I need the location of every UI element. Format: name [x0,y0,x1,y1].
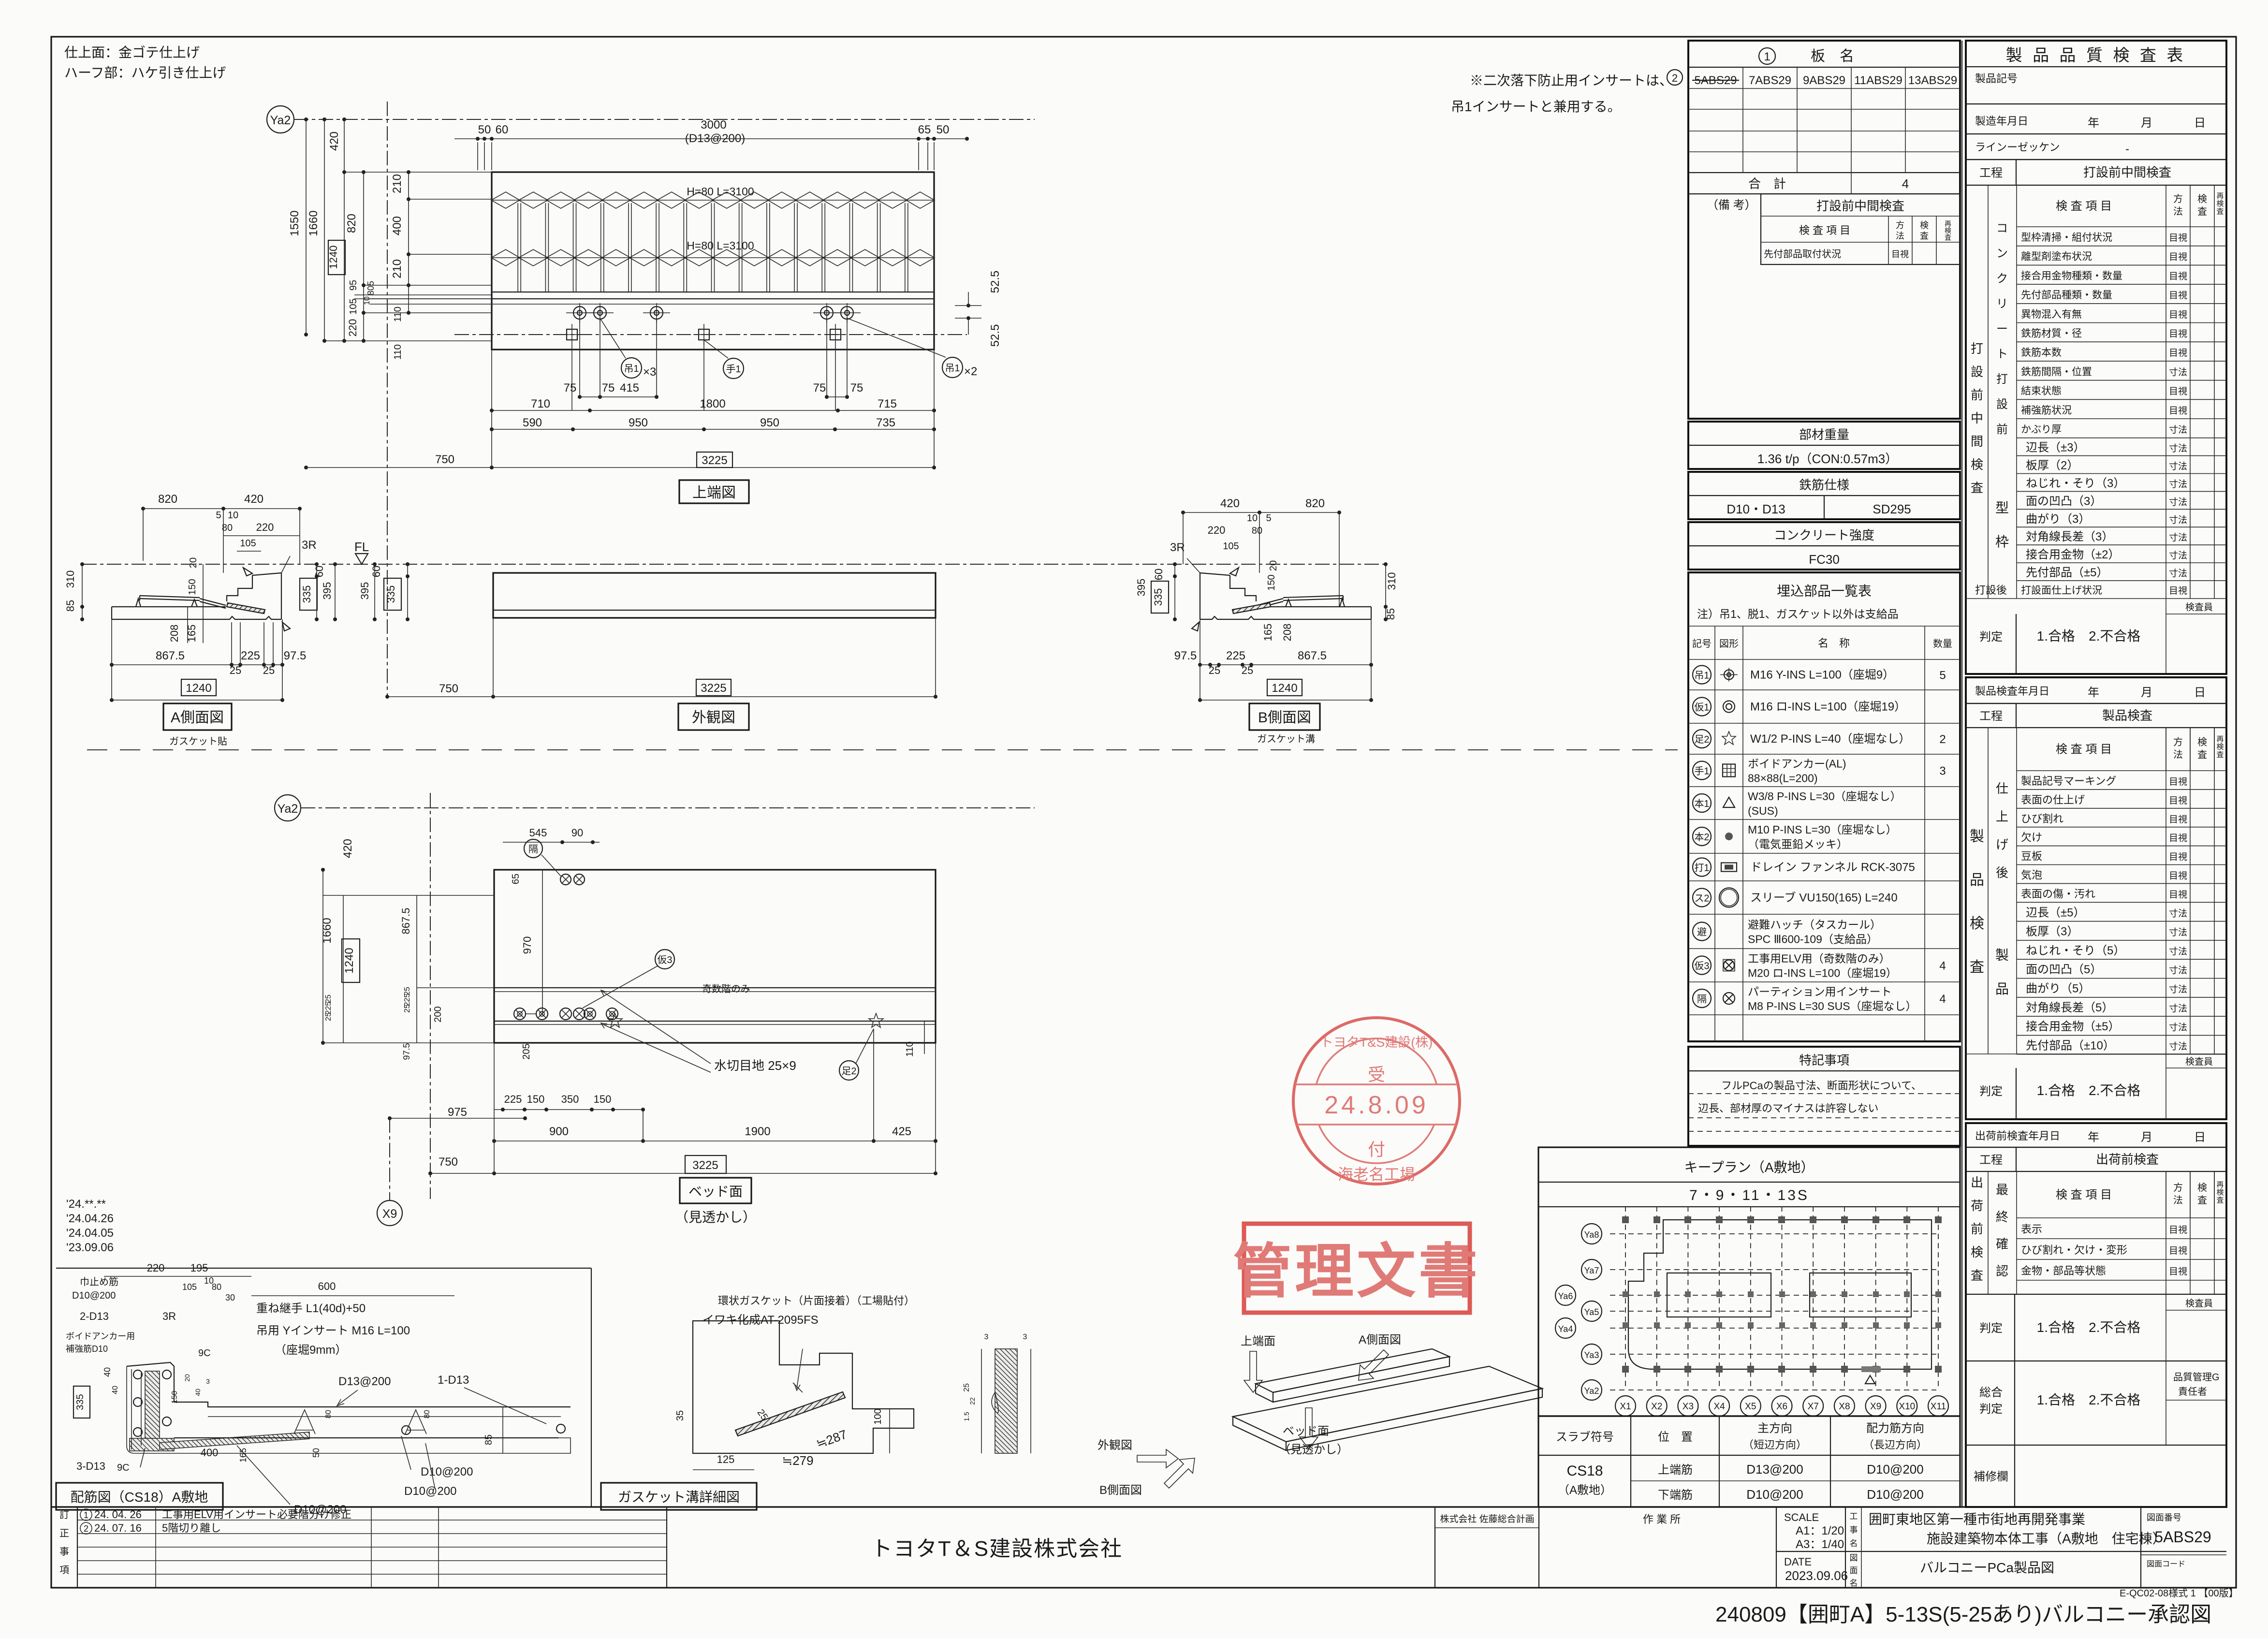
svg-text:805: 805 [366,281,376,295]
svg-text:M10 P-INS L=30（座堀なし）: M10 P-INS L=30（座堀なし） [1748,823,1897,836]
svg-text:150: 150 [171,1391,179,1404]
svg-text:先付部品種類・数量: 先付部品種類・数量 [2021,290,2112,301]
svg-text:製: 製 [1970,829,1984,845]
svg-text:H=80 L=3100: H=80 L=3100 [687,185,754,198]
svg-text:208: 208 [1281,624,1293,642]
svg-text:（座堀9mm）: （座堀9mm） [275,1344,347,1357]
svg-text:950: 950 [629,416,648,429]
svg-text:Ya4: Ya4 [1558,1324,1573,1334]
svg-text:（見透かし）: （見透かし） [1279,1443,1348,1456]
svg-text:Ya3: Ya3 [1584,1350,1599,1360]
svg-text:検: 検 [1971,457,1983,472]
svg-text:寸法: 寸法 [2169,497,2187,507]
svg-text:トヨタT&S建設(株): トヨタT&S建設(株) [1320,1035,1433,1050]
svg-text:総合: 総合 [1979,1386,2003,1399]
svg-text:25: 25 [403,1004,411,1013]
svg-text:品質管理G: 品質管理G [2173,1372,2220,1383]
svg-text:辺長（±5）: 辺長（±5） [2026,906,2085,919]
svg-text:165: 165 [238,1448,248,1462]
svg-text:ねじれ・そり（5）: ねじれ・そり（5） [2026,944,2125,957]
svg-text:日: 日 [2194,117,2206,130]
svg-text:検: 検 [2197,1182,2207,1193]
svg-text:Ya6: Ya6 [1558,1291,1573,1301]
svg-text:9C: 9C [117,1462,130,1473]
svg-text:D10・D13: D10・D13 [1727,502,1785,516]
svg-text:2: 2 [1672,72,1678,84]
svg-text:900: 900 [549,1125,569,1138]
svg-text:（長辺方向）: （長辺方向） [1863,1439,1927,1451]
svg-text:方: 方 [2173,193,2183,205]
svg-text:ひび割れ・欠け・変形: ひび割れ・欠け・変形 [2021,1244,2127,1256]
svg-text:目視: 目視 [2169,814,2187,825]
svg-text:前: 前 [1971,1222,1983,1236]
svg-text:ドレイン ファンネル RCK-3075: ドレイン ファンネル RCK-3075 [1750,861,1915,874]
svg-text:Ya8: Ya8 [1584,1230,1599,1240]
svg-text:'23.09.06: '23.09.06 [66,1241,114,1254]
svg-text:再: 再 [2216,1181,2224,1189]
svg-text:目視: 目視 [2169,776,2187,787]
svg-text:上: 上 [1996,809,2008,824]
svg-text:310: 310 [64,570,76,588]
svg-text:項: 項 [59,1565,69,1576]
svg-text:品: 品 [1995,981,2009,996]
svg-text:5: 5 [216,510,221,521]
svg-text:埋込部品一覧表: 埋込部品一覧表 [1777,584,1872,599]
svg-text:面の凹凸（5）: 面の凹凸（5） [2026,963,2102,976]
svg-text:225: 225 [504,1093,522,1105]
svg-text:工程: 工程 [1979,167,2003,180]
svg-text:判定: 判定 [1979,1085,2003,1098]
svg-text:目視: 目視 [2169,386,2187,397]
svg-text:上端図: 上端図 [692,485,736,501]
svg-text:注）吊1、脱1、ガスケット以外は支給品: 注）吊1、脱1、ガスケット以外は支給品 [1697,608,1899,620]
svg-text:名: 名 [1850,1539,1858,1548]
svg-text:867.5: 867.5 [400,907,412,934]
svg-text:X3: X3 [1683,1402,1694,1412]
svg-text:判定: 判定 [1979,630,2003,643]
svg-text:面: 面 [1850,1566,1858,1575]
svg-text:吊用 Yインサート M16 L=100: 吊用 Yインサート M16 L=100 [256,1324,410,1337]
svg-text:350: 350 [561,1093,579,1105]
svg-text:寸法: 寸法 [2169,479,2187,490]
svg-text:60: 60 [496,123,509,136]
svg-text:検: 検 [2216,743,2224,751]
svg-text:335: 335 [75,1394,86,1410]
svg-text:H=80 L=3100: H=80 L=3100 [687,239,754,252]
svg-text:型枠清掃・組付状況: 型枠清掃・組付状況 [2021,232,2112,243]
svg-text:検査員: 検査員 [2185,1056,2213,1067]
svg-text:目視: 目視 [2169,233,2187,243]
svg-text:目視: 目視 [2169,309,2187,320]
svg-text:50: 50 [936,123,950,136]
svg-text:24.8.09: 24.8.09 [1324,1091,1429,1119]
svg-text:査: 査 [2216,1196,2224,1204]
svg-text:25: 25 [263,664,275,676]
svg-text:220: 220 [347,319,359,337]
svg-text:位 置: 位 置 [1658,1431,1693,1444]
svg-text:仕上面：金ゴテ仕上げ: 仕上面：金ゴテ仕上げ [64,45,200,60]
svg-text:10: 10 [1247,513,1258,524]
svg-text:正: 正 [59,1528,69,1539]
svg-text:目視: 目視 [2169,1266,2187,1277]
svg-text:査: 査 [1971,1268,1983,1283]
svg-text:X7: X7 [1808,1402,1819,1412]
svg-text:スリーブ VU150(165) L=240: スリーブ VU150(165) L=240 [1750,892,1898,905]
svg-text:目視: 目視 [2169,1225,2187,1235]
svg-text:22: 22 [968,1397,976,1405]
svg-text:寸法: 寸法 [2169,965,2187,976]
svg-text:1: 1 [1764,50,1770,63]
svg-text:吊1: 吊1 [624,364,639,374]
svg-text:40: 40 [102,1367,112,1377]
svg-text:吊1: 吊1 [1694,671,1709,681]
svg-text:A側面図: A側面図 [171,710,224,726]
svg-text:検: 検 [2216,200,2224,208]
svg-text:M20 ロ-INS L=100（座堀19）: M20 ロ-INS L=100（座堀19） [1748,967,1897,980]
svg-text:1.5: 1.5 [963,1412,970,1421]
svg-text:40: 40 [111,1386,119,1394]
svg-text:鉄筋本数: 鉄筋本数 [2021,347,2062,358]
svg-text:月: 月 [2141,117,2152,130]
svg-text:105: 105 [348,298,359,314]
svg-text:隔: 隔 [1697,994,1707,1005]
svg-text:65: 65 [511,874,521,884]
svg-text:前: 前 [1971,388,1983,402]
svg-text:確: 確 [1996,1237,2008,1251]
svg-text:設: 設 [1971,365,1983,379]
svg-text:合 計: 合 計 [1748,176,1786,191]
svg-text:210: 210 [391,174,404,193]
svg-text:（短辺方向）: （短辺方向） [1743,1439,1807,1451]
svg-text:200: 200 [433,1006,443,1022]
svg-text:作 業 所: 作 業 所 [1643,1513,1681,1525]
svg-text:60: 60 [370,566,382,577]
svg-text:寸法: 寸法 [2169,1022,2187,1033]
svg-text:設: 設 [1996,398,2008,411]
svg-text:ラインーゼッケン: ラインーゼッケン [1975,141,2060,153]
svg-text:165: 165 [1262,624,1274,642]
svg-text:工事用ELV用（奇数階のみ）: 工事用ELV用（奇数階のみ） [1748,952,1890,965]
svg-text:管理文書: 管理文書 [1233,1239,1480,1304]
svg-text:目視: 目視 [2169,405,2187,416]
svg-text:鉄筋間隔・位置: 鉄筋間隔・位置 [2021,366,2092,378]
svg-text:2: 2 [84,1524,88,1534]
svg-text:5: 5 [1939,669,1946,682]
svg-text:110: 110 [393,344,403,360]
svg-text:検: 検 [2216,1188,2224,1197]
svg-text:×3: ×3 [643,366,656,379]
svg-text:げ: げ [1996,837,2008,852]
svg-text:目視: 目視 [2169,348,2187,358]
svg-text:820: 820 [1305,497,1325,510]
svg-text:前: 前 [1996,423,2008,436]
svg-text:間: 間 [1971,434,1983,449]
svg-text:1240: 1240 [186,682,211,695]
svg-text:外観図: 外観図 [692,710,735,726]
svg-text:7・9・11・13S: 7・9・11・13S [1689,1187,1809,1203]
svg-text:1.合格 2.不合格: 1.合格 2.不合格 [2037,1083,2141,1098]
svg-text:SPC Ⅲ600-109（支給品）: SPC Ⅲ600-109（支給品） [1748,933,1878,946]
svg-text:製: 製 [1995,948,2009,963]
svg-text:1660: 1660 [321,918,334,943]
svg-text:足2: 足2 [841,1066,856,1077]
svg-text:方: 方 [2173,737,2183,748]
svg-text:ねじれ・そり（3）: ねじれ・そり（3） [2026,477,2125,490]
svg-text:図形: 図形 [1719,638,1739,649]
svg-text:面の凹凸（3）: 面の凹凸（3） [2026,495,2102,508]
svg-text:月: 月 [2141,1131,2152,1144]
svg-text:仮1: 仮1 [1694,702,1709,713]
svg-text:仮3: 仮3 [657,954,672,965]
svg-text:（見透かし）: （見透かし） [675,1210,756,1225]
svg-text:目視: 目視 [2169,271,2187,281]
svg-text:2: 2 [1939,733,1946,746]
svg-text:1240: 1240 [343,948,356,973]
svg-text:仮3: 仮3 [1694,961,1709,972]
svg-text:接合用金物（±5）: 接合用金物（±5） [2026,1020,2120,1033]
svg-text:97.5: 97.5 [1174,649,1197,662]
svg-text:X2: X2 [1651,1402,1662,1412]
svg-text:コンクリート強度: コンクリート強度 [1774,528,1874,542]
svg-text:1.合格 2.不合格: 1.合格 2.不合格 [2037,629,2141,643]
svg-text:寸法: 寸法 [2169,946,2187,957]
svg-text:足2: 足2 [1694,734,1709,745]
svg-text:打: 打 [1996,373,2008,386]
svg-text:A3：1/40: A3：1/40 [1796,1538,1844,1551]
svg-text:法: 法 [2173,749,2183,760]
svg-text:3: 3 [984,1333,989,1341]
svg-text:検 査 項 目: 検 査 項 目 [2056,200,2112,213]
svg-text:ガスケット溝: ガスケット溝 [1257,733,1315,745]
svg-text:3225: 3225 [701,682,726,695]
svg-text:鉄筋仕様: 鉄筋仕様 [1799,478,1849,492]
svg-text:コ: コ [1996,222,2008,235]
svg-text:X11: X11 [1931,1402,1946,1412]
svg-text:950: 950 [760,416,779,429]
svg-text:395: 395 [1135,579,1147,597]
svg-text:査: 査 [1920,231,1929,241]
svg-text:D13@200: D13@200 [1746,1462,1803,1477]
svg-text:※二次落下防止用インサートは、: ※二次落下防止用インサートは、 [1470,73,1673,88]
svg-text:3R: 3R [162,1310,176,1322]
svg-text:囲町東地区第一種市街地再開発事業: 囲町東地区第一種市街地再開発事業 [1869,1512,2085,1527]
svg-text:20: 20 [1268,560,1279,571]
svg-text:97.5: 97.5 [284,649,307,662]
svg-text:420: 420 [328,132,341,151]
svg-text:査: 査 [1970,959,1984,975]
svg-text:鉄筋材質・径: 鉄筋材質・径 [2021,328,2082,339]
svg-text:寸法: 寸法 [2169,568,2187,579]
svg-text:目視: 目視 [1891,249,1909,259]
svg-text:210: 210 [391,259,404,278]
svg-text:日: 日 [2194,1131,2206,1144]
svg-text:420: 420 [244,493,263,506]
svg-text:水切目地 25×9: 水切目地 25×9 [714,1058,796,1073]
svg-text:75: 75 [813,381,826,395]
svg-text:X10: X10 [1899,1402,1915,1412]
svg-text:'24.04.26: '24.04.26 [66,1212,114,1225]
svg-text:710: 710 [531,397,550,410]
svg-text:95: 95 [348,280,359,291]
svg-text:5ABS29: 5ABS29 [2154,1528,2211,1546]
svg-text:補修欄: 補修欄 [1974,1470,2008,1483]
svg-text:X5: X5 [1745,1402,1756,1412]
svg-text:CS18: CS18 [1566,1463,1603,1479]
svg-text:検: 検 [1920,220,1929,230]
svg-text:50: 50 [311,1448,321,1458]
svg-text:異物混入有無: 異物混入有無 [2021,309,2082,320]
svg-text:表面の傷・汚れ: 表面の傷・汚れ [2021,888,2095,900]
svg-text:600: 600 [318,1280,336,1292]
svg-text:(SUS): (SUS) [1748,804,1778,817]
svg-text:Ya2: Ya2 [1584,1386,1599,1396]
svg-text:D10@200: D10@200 [404,1485,456,1498]
svg-text:FC30: FC30 [1809,552,1840,567]
svg-text:1660: 1660 [307,210,320,236]
svg-text:B側面図: B側面図 [1099,1484,1142,1497]
svg-text:5: 5 [1266,513,1271,524]
svg-text:FL: FL [354,540,369,554]
svg-text:重ね継手 L1(40d)+50: 重ね継手 L1(40d)+50 [256,1302,366,1315]
svg-text:査: 査 [2216,751,2224,759]
svg-text:目視: 目視 [2169,833,2187,844]
svg-text:ベッド面: ベッド面 [1283,1425,1329,1438]
svg-text:110: 110 [393,307,403,322]
svg-text:製造年月日: 製造年月日 [1975,115,2028,127]
svg-text:製品検査年月日: 製品検査年月日 [1975,685,2049,697]
svg-text:ひび割れ: ひび割れ [2021,813,2063,825]
svg-text:判定: 判定 [1979,1322,2003,1335]
svg-text:手1: 手1 [1694,766,1709,777]
svg-text:検 査 項 目: 検 査 項 目 [2056,743,2112,756]
svg-text:図: 図 [1850,1553,1858,1563]
svg-text:目視: 目視 [2169,329,2187,339]
svg-text:25: 25 [1242,664,1253,676]
svg-text:X1: X1 [1620,1402,1631,1412]
svg-text:52.5: 52.5 [989,324,1002,347]
svg-text:X4: X4 [1713,1402,1725,1412]
svg-text:9C: 9C [198,1348,211,1359]
svg-text:65: 65 [918,123,931,136]
svg-text:590: 590 [523,416,542,429]
svg-text:製品検査: 製品検査 [2102,708,2152,723]
svg-text:施設建築物本体工事（A敷地 住宅棟）: 施設建築物本体工事（A敷地 住宅棟） [1927,1531,2166,1546]
svg-text:ク: ク [1996,272,2008,285]
svg-text:ン: ン [1996,247,2008,260]
svg-text:9ABS29: 9ABS29 [1803,74,1845,87]
svg-text:335: 335 [301,585,313,603]
svg-text:400: 400 [201,1447,219,1459]
svg-text:X6: X6 [1776,1402,1787,1412]
svg-text:検: 検 [1971,1245,1983,1259]
svg-text:配力筋方向: 配力筋方向 [1866,1422,1924,1435]
svg-text:ベッド面: ベッド面 [688,1184,743,1199]
svg-text:先付部品取付状況: 先付部品取付状況 [1764,249,1841,260]
svg-text:25: 25 [324,1012,333,1021]
svg-text:配筋図（CS18）A敷地: 配筋図（CS18）A敷地 [71,1490,208,1505]
svg-text:年: 年 [2088,117,2099,130]
svg-text:110: 110 [905,1041,915,1057]
svg-text:X8: X8 [1839,1402,1850,1412]
svg-text:寸法: 寸法 [2169,532,2187,543]
svg-text:310: 310 [1386,572,1398,590]
svg-text:1900: 1900 [745,1125,770,1138]
svg-text:吊1: 吊1 [945,363,960,374]
svg-text:5階切り離し: 5階切り離し [162,1522,221,1534]
svg-text:X9: X9 [382,1207,397,1221]
svg-text:打設前中間検査: 打設前中間検査 [1816,199,1904,213]
svg-text:105: 105 [182,1282,197,1292]
svg-text:下端筋: 下端筋 [1658,1489,1693,1502]
svg-text:10: 10 [363,296,371,305]
svg-text:735: 735 [876,416,895,429]
svg-text:再: 再 [2216,735,2224,744]
svg-text:150: 150 [527,1093,545,1105]
svg-text:寸法: 寸法 [2169,1003,2187,1014]
svg-text:結束状態: 結束状態 [2021,386,2062,397]
svg-text:2023.09.06: 2023.09.06 [1785,1568,1848,1583]
svg-text:離型剤塗布状況: 離型剤塗布状況 [2021,251,2092,263]
svg-text:寸法: 寸法 [2169,514,2187,525]
svg-text:97.5: 97.5 [402,1043,411,1060]
svg-text:3R: 3R [302,539,317,552]
svg-text:30: 30 [225,1293,235,1302]
svg-text:バルコニーPCa製品図: バルコニーPCa製品図 [1920,1560,2054,1575]
svg-text:法: 法 [2173,1195,2183,1206]
svg-text:海老名工場: 海老名工場 [1338,1166,1415,1183]
svg-text:寸法: 寸法 [2169,908,2187,919]
svg-text:545: 545 [529,827,547,839]
svg-text:工: 工 [1850,1512,1858,1521]
svg-text:975: 975 [448,1106,467,1119]
svg-text:'24.**.**: '24.**.** [66,1198,106,1211]
svg-text:表示: 表示 [2021,1223,2042,1235]
svg-text:D13@200: D13@200 [338,1375,391,1388]
svg-text:≒279: ≒279 [782,1453,813,1468]
svg-text:打1: 打1 [1694,863,1709,874]
svg-text:板厚（2）: 板厚（2） [2026,459,2078,472]
svg-text:枠: 枠 [1995,534,2009,549]
svg-text:90: 90 [571,827,583,839]
svg-text:出荷前検査: 出荷前検査 [2096,1152,2159,1167]
svg-text:先付部品（±5）: 先付部品（±5） [2026,566,2108,579]
svg-text:225: 225 [241,649,260,662]
svg-text:査: 査 [1945,234,1951,241]
svg-text:415: 415 [620,381,639,395]
svg-text:80: 80 [1252,526,1262,536]
svg-text:ガスケット溝詳細図: ガスケット溝詳細図 [618,1490,740,1505]
svg-text:寸法: 寸法 [2169,424,2187,435]
svg-text:名: 名 [1850,1579,1858,1588]
svg-text:150: 150 [594,1093,612,1105]
svg-text:3225: 3225 [692,1159,718,1172]
svg-text:査: 査 [2197,749,2207,760]
svg-text:製 品 品 質 検 査 表: 製 品 品 質 検 査 表 [2006,46,2186,65]
svg-text:1-D13: 1-D13 [438,1374,469,1387]
svg-text:D10@200: D10@200 [421,1465,473,1478]
svg-text:辺長、部材厚のマイナスは許容しない: 辺長、部材厚のマイナスは許容しない [1698,1102,1879,1114]
svg-text:80: 80 [222,523,233,533]
svg-text:25: 25 [1209,664,1220,676]
svg-text:対角線長差（3）: 対角線長差（3） [2026,530,2113,543]
svg-text:年: 年 [2088,686,2099,699]
svg-text:125: 125 [717,1453,735,1465]
svg-text:検 査 項 目: 検 査 項 目 [1799,224,1850,236]
svg-text:3000: 3000 [701,118,726,132]
svg-text:867.5: 867.5 [1298,649,1327,662]
svg-text:荷: 荷 [1971,1199,1983,1213]
svg-text:13ABS29: 13ABS29 [1908,74,1957,87]
